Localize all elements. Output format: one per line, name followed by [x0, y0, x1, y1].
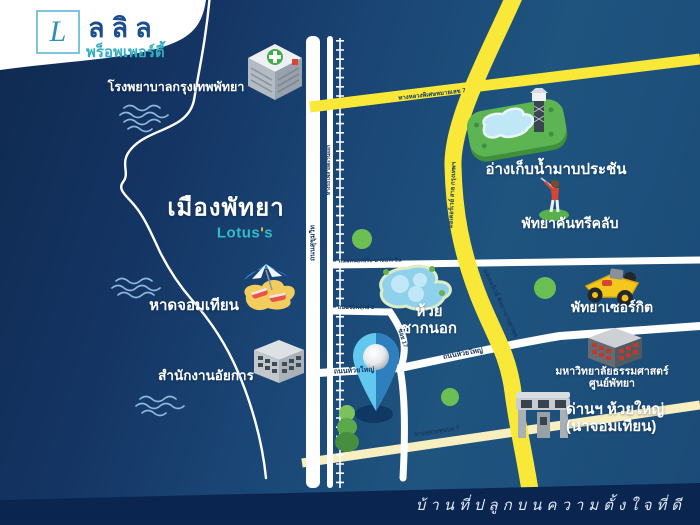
sukhumvit-road-label: ถนนสุขุมวิท [308, 225, 319, 261]
city-label: เมืองพัทยา [167, 188, 284, 227]
toll-label-line2: (นาจอมเทียน) [566, 414, 656, 438]
map-canvas: โรงพยาบาลกรุงเทพพัทยา เมืองพัทยา Lotus's… [0, 0, 700, 525]
university-label-line2: ศูนย์พัทยา [589, 375, 635, 392]
lotus-logo: Lotus's [217, 225, 273, 242]
hospital-icon [246, 42, 304, 106]
railway-label: ทางรถไฟสายตะวันออก [325, 145, 333, 195]
beach-label: หาดจอมเทียน [149, 293, 239, 317]
pin-shadow [355, 405, 393, 423]
pond-label-line2: ชากนอก [401, 316, 457, 340]
circuit-label: พัทยาเซอร์กิต [571, 297, 653, 319]
road-soi-south [400, 368, 404, 478]
attorney-office-icon [252, 338, 306, 386]
country-club-label: พัทยาคันทรีคลับ [521, 213, 618, 235]
slogan-text: บ้านที่ปลูกบนความตั้งใจที่ดี [416, 493, 686, 517]
chaiyapruek-road-label: ถนนชัยพฤกษ์ 2 [338, 304, 374, 312]
road-a-label: ถนนหนองปรือ-มาบประชัน [338, 256, 401, 265]
lalin-logo-subtitle: พร็อพเพอร์ตี้ [86, 40, 165, 64]
toll-gate-icon [514, 384, 572, 442]
pine-tree-icon [335, 405, 359, 452]
beach-umbrella-icon [238, 262, 298, 314]
reservoir-icon [462, 88, 572, 162]
huai-yai-road-label-west: ถนนห้วยใหญ่ [334, 364, 375, 377]
lalin-logo-mark: L [36, 10, 80, 54]
logo-panel: L ลลิล พร็อพเพอร์ตี้ [0, 0, 240, 84]
attorney-label: สำนักงานอัยการ [158, 364, 254, 386]
reservoir-label: อ่างเก็บน้ำมาบประชัน [485, 157, 626, 181]
